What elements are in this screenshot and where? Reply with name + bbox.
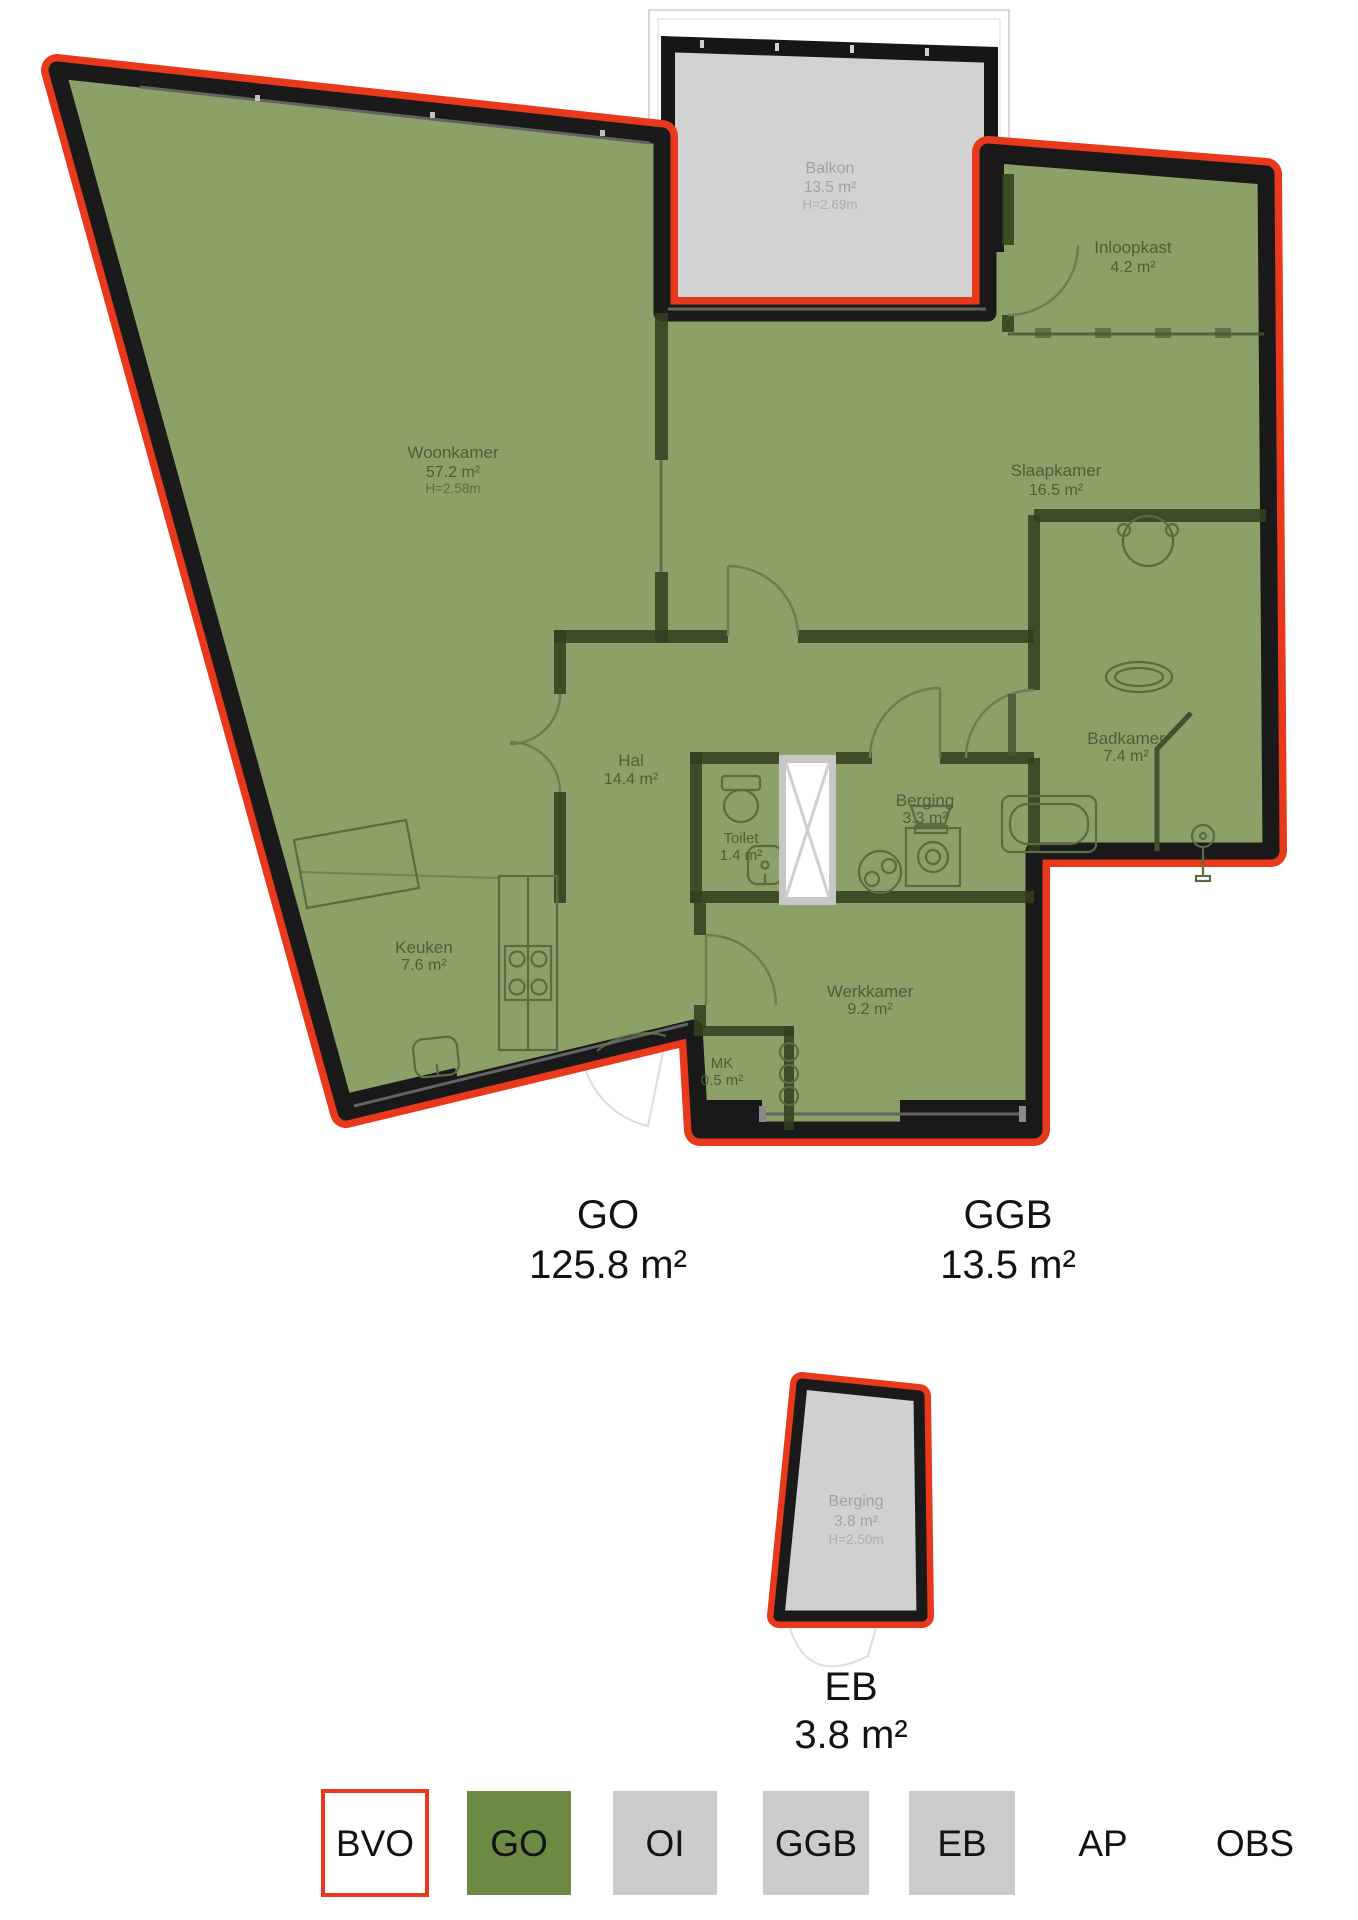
legend-label-bvo: BVO bbox=[336, 1823, 414, 1864]
legend-label-oi: OI bbox=[645, 1823, 684, 1864]
summary-go-label: GO bbox=[577, 1193, 639, 1237]
room-label-balkon-height: H=2.69m bbox=[802, 197, 857, 212]
room-label-toilet-name: Toilet bbox=[723, 830, 759, 847]
floorplan-page: Balkon 13.5 m² H=2.69m Inloopkast 4.2 m²… bbox=[0, 0, 1358, 1920]
room-label-badkamer-name: Badkamer bbox=[1087, 729, 1165, 748]
balcony-floor bbox=[675, 50, 984, 306]
storage-label-area: 3.8 m² bbox=[834, 1513, 878, 1530]
room-label-badkamer-area: 7.4 m² bbox=[1103, 748, 1149, 765]
legend-label-obs: OBS bbox=[1216, 1823, 1294, 1864]
summary-texts: GO 125.8 m² GGB 13.5 m² bbox=[529, 1193, 1076, 1287]
room-label-werkkamer-name: Werkkamer bbox=[827, 982, 914, 1001]
room-label-woonkamer-height: H=2.58m bbox=[425, 481, 480, 496]
room-label-toilet-area: 1.4 m² bbox=[720, 847, 763, 864]
room-label-mk-area: 0.5 m² bbox=[701, 1072, 744, 1089]
room-label-berging-name: Berging bbox=[896, 791, 955, 810]
shaft-x-icon bbox=[779, 755, 836, 905]
room-toilet: Toilet 1.4 m² bbox=[720, 830, 763, 864]
room-keuken: Keuken 7.6 m² bbox=[395, 938, 453, 974]
room-label-hal-name: Hal bbox=[618, 751, 644, 770]
room-balkon: Balkon 13.5 m² H=2.69m bbox=[802, 160, 857, 212]
room-label-werkkamer-area: 9.2 m² bbox=[847, 1001, 893, 1018]
summary-ggb-label: GGB bbox=[964, 1193, 1053, 1237]
floorplan-svg: Balkon 13.5 m² H=2.69m Inloopkast 4.2 m²… bbox=[0, 0, 1358, 1920]
room-label-woonkamer-name: Woonkamer bbox=[407, 443, 499, 462]
room-label-inloopkast-name: Inloopkast bbox=[1094, 238, 1172, 257]
room-label-slaapkamer-name: Slaapkamer bbox=[1011, 461, 1102, 480]
storage-label-height: H=2.50m bbox=[828, 1532, 883, 1547]
legend: BVO GO OI GGB EB AP OBS bbox=[323, 1791, 1294, 1895]
storage-label-name: Berging bbox=[828, 1493, 883, 1510]
room-label-keuken-area: 7.6 m² bbox=[401, 957, 447, 974]
room-label-inloopkast-area: 4.2 m² bbox=[1110, 259, 1156, 276]
room-berging: Berging 3.3 m² bbox=[896, 791, 955, 827]
room-label-mk-name: MK bbox=[711, 1055, 734, 1072]
legend-label-ap: AP bbox=[1078, 1823, 1127, 1864]
room-label-berging-area: 3.3 m² bbox=[902, 810, 948, 827]
room-label-slaapkamer-area: 16.5 m² bbox=[1029, 482, 1084, 499]
summary-eb-value: 3.8 m² bbox=[794, 1713, 907, 1757]
summary-ggb-value: 13.5 m² bbox=[940, 1243, 1076, 1287]
room-label-balkon-name: Balkon bbox=[806, 160, 855, 177]
legend-label-eb: EB bbox=[937, 1823, 986, 1864]
eb-storage-unit: Berging 3.8 m² H=2.50m bbox=[779, 1384, 922, 1666]
summary-eb-label: EB bbox=[824, 1665, 877, 1709]
room-label-woonkamer-area: 57.2 m² bbox=[426, 464, 481, 481]
legend-label-ggb: GGB bbox=[775, 1823, 857, 1864]
room-label-balkon-area: 13.5 m² bbox=[804, 179, 857, 196]
summary-go-value: 125.8 m² bbox=[529, 1243, 687, 1287]
summary-eb-texts: EB 3.8 m² bbox=[794, 1665, 907, 1757]
room-label-hal-area: 14.4 m² bbox=[604, 771, 659, 788]
room-label-keuken-name: Keuken bbox=[395, 938, 453, 957]
legend-label-go: GO bbox=[490, 1823, 548, 1864]
